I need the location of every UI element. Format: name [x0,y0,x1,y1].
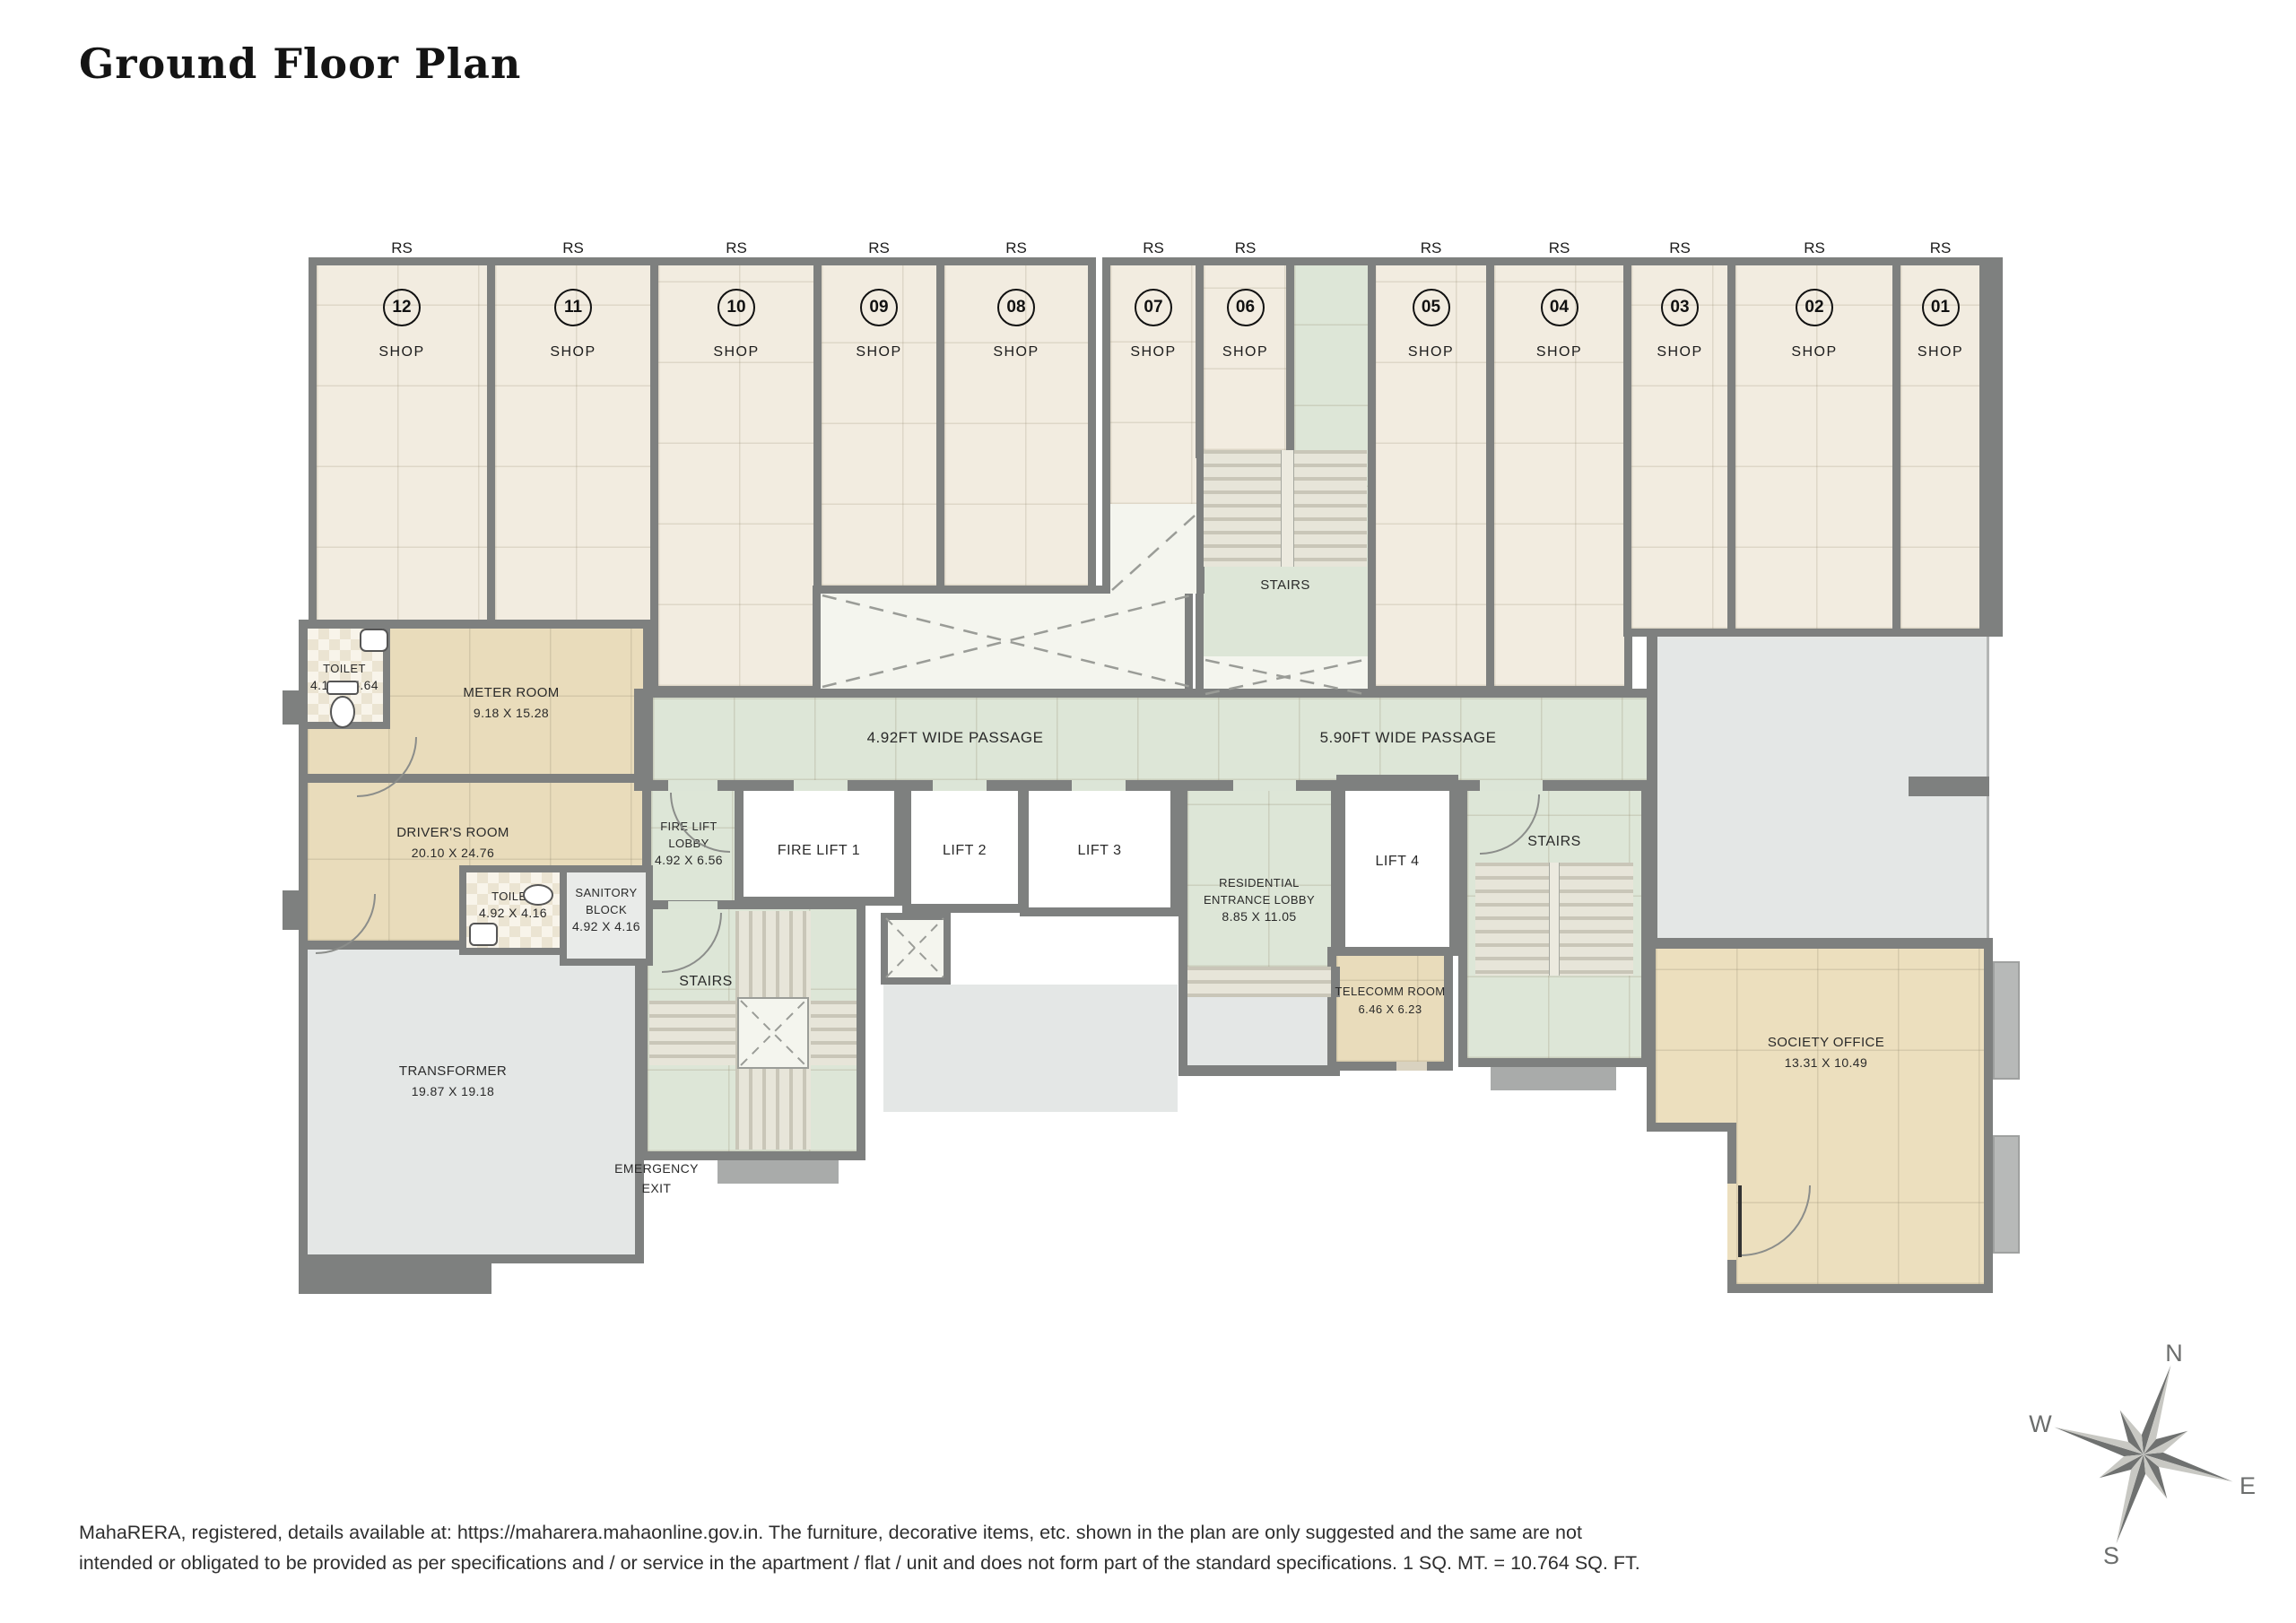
open-area-below-lifts [883,985,1178,1112]
shop-rs-label: RS [495,239,651,257]
open-cutout-area [813,586,1193,698]
society-balcony-2 [1993,1135,2020,1254]
emergency-exit-pad [717,1160,839,1184]
society-office-label: SOCIETY OFFICE13.31 X 10.49 [1692,1033,1961,1073]
open-cutout-extension [1102,504,1205,594]
toilet-1-label: TOILET4.10 X 5.64 [299,660,390,694]
passage-label-1: 4.92FT WIDE PASSAGE [704,728,1206,748]
left-stairs-door-opening [668,901,717,909]
shop-unit-09: RS 09 SHOP [813,257,944,594]
open-area-bottom-wall [1647,938,1989,949]
shop-label: SHOP [1375,344,1487,360]
ground-floor-plan-page: Ground Floor Plan RS 12 SHOP RS 11 SHOP … [0,0,2296,1623]
fire-lift-lobby-label: FIRE LIFTLOBBY 4.92 X 6.56 [639,818,739,869]
right-stairs-label: STAIRS [1458,832,1650,852]
shop-rs-label: RS [658,239,814,257]
compass-e: E [2239,1472,2256,1499]
outer-wall-right-cap [1979,257,2003,637]
mid-stairs-label: STAIRS [1204,576,1367,595]
society-office-extension [1727,1123,1993,1293]
disclaimer-line-1: MahaRERA, registered, details available … [79,1522,1582,1543]
right-stairs-treads [1475,863,1549,976]
passage-label-2: 5.90FT WIDE PASSAGE [1157,728,1659,748]
shop-label: SHOP [1900,344,1980,360]
compass-n: N [2165,1340,2183,1367]
door-opening [794,780,848,791]
left-wall-stub-1 [283,690,302,725]
meter-room-label: METER ROOM9.18 X 15.28 [390,683,632,724]
shop-rs-label: RS [822,239,936,257]
passage-left-wall [634,689,653,791]
small-cutout-square [881,913,951,985]
compass-s: S [2103,1542,2119,1569]
shop-number-badge: 07 [1135,289,1172,326]
lobby-apron-bottom-wall [1178,1065,1340,1076]
lobby-entrance-steps [1178,967,1340,997]
left-stairs-label: STAIRS [639,972,773,992]
shop-number-badge: 06 [1227,289,1265,326]
lobby-entrance-apron [1178,997,1340,1067]
door-opening [1072,780,1126,791]
disclaimer-line-2: intended or obligated to be provided as … [79,1552,1640,1574]
shop-rs-label: RS [1110,239,1196,257]
page-title: Ground Floor Plan [79,39,521,88]
mid-stairs-rail [1281,450,1294,567]
fire-lift-1-label: FIRE LIFT 1 [735,841,903,861]
shop-unit-05: RS 05 SHOP [1367,257,1495,694]
left-stairs-treads-left [649,1001,735,1065]
door-opening [933,780,987,791]
shop-unit-08: RS 08 SHOP [936,257,1096,594]
sanitory-block-label: SANITORYBLOCK 4.92 X 4.16 [558,884,655,935]
shop-rs-label: RS [317,239,487,257]
open-area-left-wall [1647,637,1657,949]
drivers-room-label: DRIVER'S ROOM20.10 X 24.76 [332,823,574,864]
shop-rs-label: RS [944,239,1088,257]
shop-rs-label: RS [1735,239,1893,257]
disclaimer-text: MahaRERA, registered, details available … [79,1517,1684,1578]
shop-label: SHOP [1204,344,1287,360]
society-notch-wall [1647,1123,1736,1132]
door-opening [1233,780,1296,791]
toilet-2-label: TOILET4.92 X 4.16 [461,888,565,922]
shop-number-badge: 05 [1413,289,1450,326]
left-stairs-treads-right [811,1001,857,1065]
shop-label: SHOP [1735,344,1893,360]
shop-label: SHOP [822,344,936,360]
shop-unit-03: RS 03 SHOP [1623,257,1736,637]
telecomm-door-threshold [1396,1062,1427,1071]
shop-unit-02: RS 02 SHOP [1727,257,1901,637]
shop-unit-04: RS 04 SHOP [1486,257,1632,694]
shop-unit-06: RS 06 SHOP [1196,257,1295,458]
shop-label: SHOP [1631,344,1728,360]
door-opening [668,780,717,791]
shop-number-badge: 08 [997,289,1035,326]
lift-4-label: LIFT 4 [1336,852,1458,872]
door-opening [1480,780,1543,791]
shop-label: SHOP [658,344,814,360]
telecomm-room-label: TELECOMM ROOM6.46 X 6.23 [1317,983,1464,1019]
shop-number-badge: 02 [1796,289,1833,326]
shop-rs-label: RS [1375,239,1487,257]
mid-stairs-landing [1196,559,1376,656]
left-wall-stub-2 [283,890,302,930]
right-stairs-treads [1558,863,1633,976]
right-stairs-rail [1549,863,1560,976]
transformer-label: TRANSFORMER19.87 X 19.18 [318,1062,587,1102]
passage-top-wall [653,689,1647,698]
shop-rs-label: RS [1204,239,1287,257]
society-balcony-1 [1993,961,2020,1080]
compass-w: W [2029,1410,2052,1437]
shop-number-badge: 09 [860,289,898,326]
right-open-area-stub [1909,777,1989,796]
shop-number-badge: 12 [383,289,421,326]
residential-lobby-label: RESIDENTIALENTRANCE LOBBY 8.85 X 11.05 [1178,874,1340,925]
shop-label: SHOP [495,344,651,360]
emergency-exit-label: EMERGENCYEXIT [581,1159,732,1198]
left-stairs-landing [737,997,809,1069]
shop-unit-01: RS 01 SHOP [1892,257,1988,637]
transformer-bottom-wall [299,1254,491,1294]
shop-rs-label: RS [1900,239,1980,257]
compass-star [2027,1338,2260,1571]
shop-unit-10: RS 10 SHOP [650,257,822,694]
lift-3-label: LIFT 3 [1020,841,1179,861]
shop-unit-07: RS 07 SHOP [1102,257,1205,512]
society-door-opening [1727,1184,1736,1260]
shop-rs-label: RS [1494,239,1624,257]
shop-number-badge: 01 [1922,289,1960,326]
lift-2-label: LIFT 2 [902,841,1027,861]
shop-label: SHOP [944,344,1088,360]
shop-unit-12: RS 12 SHOP [309,257,495,637]
shop-label: SHOP [317,344,487,360]
shop-label: SHOP [1110,344,1196,360]
shop-label: SHOP [1494,344,1624,360]
right-stairs-entry-pad [1491,1067,1616,1090]
shop-number-badge: 11 [554,289,592,326]
shop-number-badge: 03 [1661,289,1699,326]
transformer-area [299,941,644,1263]
shop-number-badge: 04 [1541,289,1578,326]
compass-rose: N E S W [2009,1318,2278,1587]
shop-unit-11: RS 11 SHOP [487,257,659,637]
shop-rs-label: RS [1631,239,1728,257]
shop-number-badge: 10 [717,289,755,326]
